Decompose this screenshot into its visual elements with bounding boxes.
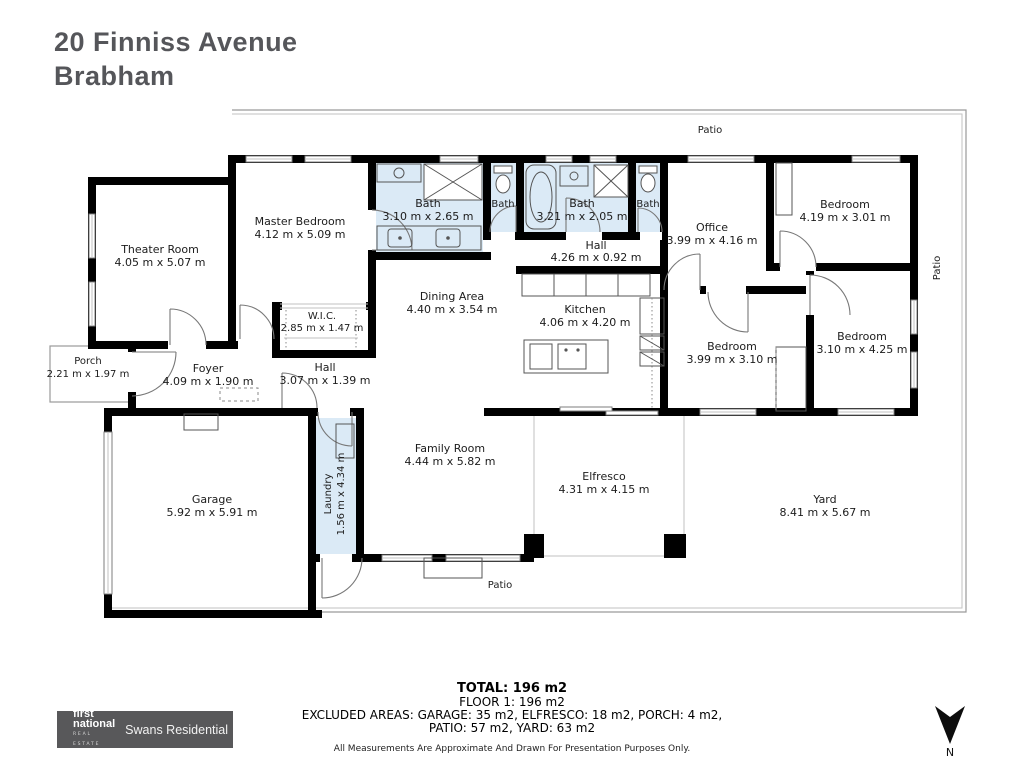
north-arrow-icon [928, 700, 972, 744]
label-porch-dims: 2.21 m x 1.97 m [47, 369, 130, 380]
label-laundry-dims: 1.56 m x 4.34 m [336, 453, 347, 536]
label-dining-name: Dining Area [420, 290, 484, 303]
label-foyer-dims: 4.09 m x 1.90 m [163, 375, 254, 388]
garage-step [184, 414, 218, 430]
label-yard-dims: 8.41 m x 5.67 m [780, 506, 871, 519]
kitchen-counters [522, 274, 664, 408]
label-garage-name: Garage [192, 493, 233, 506]
label-foyer-name: Foyer [193, 362, 224, 375]
label-wic-dims: 2.85 m x 1.47 m [281, 323, 364, 334]
agency-logo: first national REAL ESTATE Swans Residen… [57, 711, 233, 748]
compass: N [928, 700, 972, 758]
label-hall-left-name: Hall [314, 361, 335, 374]
label-bath-left: Bath [491, 199, 514, 210]
label-patio-right: Patio [932, 256, 943, 281]
bath-shower [594, 165, 628, 197]
label-theater-dims: 4.05 m x 5.07 m [115, 256, 206, 269]
logo-agency-name: Swans Residential [125, 723, 228, 737]
label-bath-right: Bath [636, 199, 659, 210]
label-hall-left-dims: 3.07 m x 1.39 m [280, 374, 371, 387]
label-bath-main-name: Bath [569, 197, 595, 210]
label-bath-main-dims: 3.21 m x 2.05 m [537, 210, 628, 223]
logo-brand: first national REAL ESTATE [73, 709, 115, 750]
label-bath-ensuite-name: Bath [415, 197, 441, 210]
label-master-name: Master Bedroom [255, 215, 346, 228]
label-office-dims: 3.99 m x 4.16 m [667, 234, 758, 247]
label-bedroom-tr-dims: 4.19 m x 3.01 m [800, 211, 891, 224]
label-patio-top: Patio [698, 125, 723, 136]
label-garage-dims: 5.92 m x 5.91 m [167, 506, 258, 519]
label-family-dims: 4.44 m x 5.82 m [405, 455, 496, 468]
label-dining-dims: 4.40 m x 3.54 m [407, 303, 498, 316]
foyer-niche [220, 388, 258, 401]
label-kitchen-dims: 4.06 m x 4.20 m [540, 316, 631, 329]
sliding-door [560, 407, 612, 411]
label-patio-bottom: Patio [488, 580, 513, 591]
label-family-name: Family Room [415, 442, 485, 455]
label-yard-name: Yard [812, 493, 836, 506]
toilet-left [494, 166, 512, 193]
label-bedroom-c-name: Bedroom [707, 340, 757, 353]
label-bedroom-tr-name: Bedroom [820, 198, 870, 211]
kitchen-island [524, 340, 608, 373]
bedroom-robe-top [776, 163, 792, 215]
label-hall-top-dims: 4.26 m x 0.92 m [551, 251, 642, 264]
label-bedroom-c-dims: 3.99 m x 3.10 m [687, 353, 778, 366]
label-porch-name: Porch [74, 356, 102, 367]
label-elfresco-name: Elfresco [582, 470, 626, 483]
logo-tagline: REAL ESTATE [73, 730, 115, 750]
label-theater-name: Theater Room [120, 243, 199, 256]
total-area: TOTAL: 196 m2 [0, 681, 1024, 696]
label-elfresco-dims: 4.31 m x 4.15 m [559, 483, 650, 496]
label-laundry-name: Laundry [323, 474, 334, 515]
label-office-name: Office [696, 221, 728, 234]
ensuite-shower [424, 164, 482, 200]
label-bath-ensuite-dims: 3.10 m x 2.65 m [383, 210, 474, 223]
label-wic-name: W.I.C. [308, 311, 336, 322]
floor-plan: Theater Room 4.05 m x 5.07 m Master Bedr… [0, 0, 1024, 768]
bedroom-robe-right [776, 347, 806, 411]
logo-brand-bottom: national [73, 719, 115, 729]
north-label: N [928, 746, 972, 759]
toilet-right [639, 166, 657, 192]
label-master-dims: 4.12 m x 5.09 m [255, 228, 346, 241]
label-bedroom-r-name: Bedroom [837, 330, 887, 343]
label-bedroom-r-dims: 3.10 m x 4.25 m [817, 343, 908, 356]
label-kitchen-name: Kitchen [564, 303, 605, 316]
